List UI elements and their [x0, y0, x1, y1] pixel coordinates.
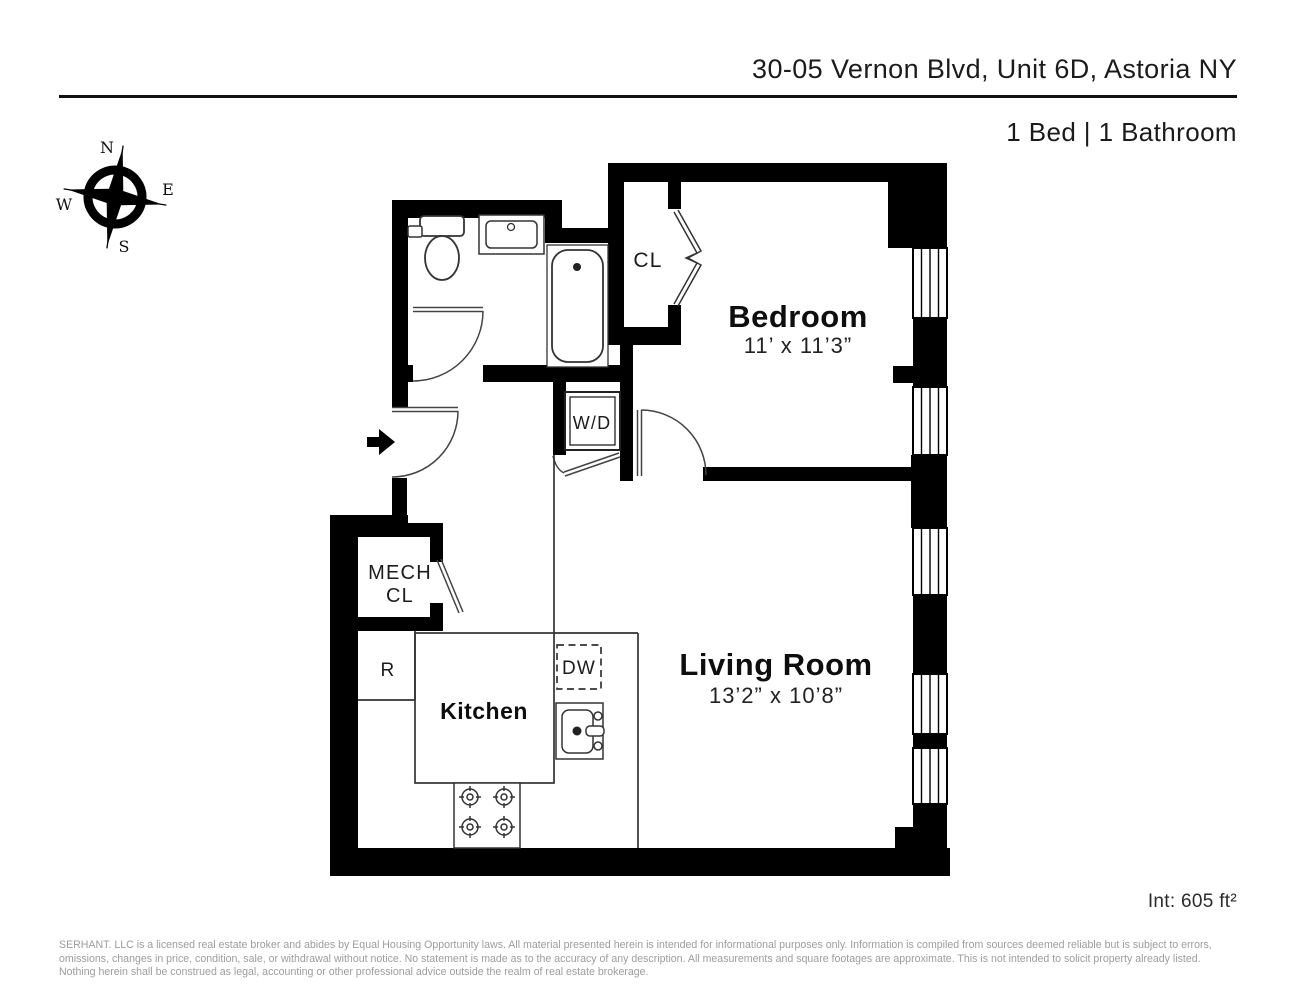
bedroom-dimensions: 11’ x 11’3” — [744, 333, 852, 358]
living-room-dimensions: 13’2” x 10’8” — [709, 683, 843, 708]
washer-dryer-label: W/D — [573, 413, 612, 433]
kitchen-sink — [556, 703, 604, 759]
compass-rose-icon: N E S W — [56, 138, 175, 257]
bedroom-label: Bedroom — [728, 299, 868, 334]
window-bedroom-2 — [913, 387, 947, 455]
window-living-1 — [913, 528, 947, 595]
refrigerator-label: R — [381, 660, 396, 681]
mech-closet-label-line2: CL — [386, 585, 414, 607]
compass-south-label: S — [119, 237, 130, 256]
dishwasher-label: DW — [562, 658, 596, 679]
window-living-3 — [913, 748, 947, 804]
bathroom-door — [413, 308, 483, 382]
washer-dryer-door — [553, 453, 620, 476]
compass-west-label: W — [56, 195, 73, 214]
compass-east-label: E — [162, 180, 174, 199]
bedroom-door — [638, 410, 707, 476]
entry-arrow-icon — [367, 429, 395, 455]
kitchen-label: Kitchen — [440, 698, 528, 724]
living-room-label: Living Room — [679, 647, 872, 682]
bedroom-closet-bifold-door — [674, 210, 701, 306]
mech-closet-label-line1: MECH — [368, 562, 432, 584]
toilet — [408, 216, 464, 280]
entry-door — [392, 408, 458, 478]
floor-plan: N E S W — [0, 0, 1294, 1000]
bathtub — [547, 245, 608, 367]
compass-north-label: N — [100, 138, 114, 157]
window-living-2 — [913, 674, 947, 734]
window-bedroom-1 — [913, 248, 947, 318]
bedroom-closet-label: CL — [633, 249, 662, 272]
bathroom-sink-vanity — [479, 215, 544, 254]
